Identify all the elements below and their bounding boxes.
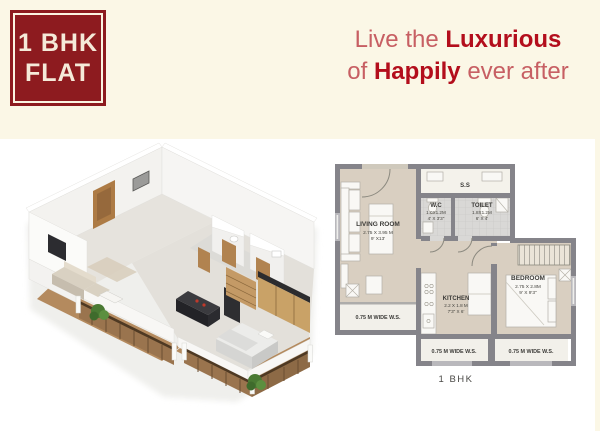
headline-line2: of Happily ever after [322, 56, 594, 88]
kitchen-label: KITCHEN [443, 296, 470, 302]
bedroom-label: BEDROOM [511, 275, 545, 282]
badge-line2: FLAT [25, 58, 91, 88]
wc-fixture [230, 236, 238, 242]
bedroom-imperial: 9' X 9'3" [519, 290, 537, 296]
living-room-metric: 2.75 X 3.95 M [363, 230, 393, 236]
toilet-metric: 1.8X1.2M [472, 210, 492, 215]
toilet-label: TOILET [471, 203, 493, 209]
floorplan-2d: S.S W.C 1.0X1.2M 4' X 3'3" TOILET 1.8X1.… [332, 158, 590, 392]
living-room-imperial: 9' X13' [371, 236, 385, 242]
kitchen-imperial: 7'3" X 6' [448, 309, 465, 314]
ws-bottom-left-label: 0.75 M WIDE W.S. [432, 349, 477, 355]
headline-line1: Live the Luxurious [322, 24, 594, 56]
living-room-label: LIVING ROOM [356, 221, 400, 228]
wc-metric: 1.0X1.2M [426, 210, 446, 215]
unit-type-badge: 1 BHK FLAT [10, 10, 106, 106]
headline: Live the Luxurious of Happily ever after [322, 24, 594, 88]
wc-imperial: 4' X 3'3" [428, 216, 445, 221]
kitchen-metric: 2.2 X 1.8 M [444, 303, 468, 308]
bedroom-metric: 2.75 X 2.8M [515, 284, 541, 290]
headline-luxurious: Luxurious [445, 26, 561, 53]
ws-left-label: 0.75 M WIDE W.S. [356, 315, 401, 321]
headline-live-the: Live the [355, 26, 446, 53]
brochure-page: 1 BHK FLAT Live the Luxurious of Happily… [0, 0, 600, 431]
wc-label: W.C [430, 203, 442, 209]
headline-ever-after: ever after [461, 58, 569, 85]
toilet-imperial: 6' X 4' [476, 216, 489, 221]
headline-of: of [347, 58, 374, 85]
toilet-fixture [272, 251, 281, 257]
wardrobe-hatch [518, 245, 570, 265]
plan-caption: 1 BHK [439, 374, 474, 385]
ws-bottom-right-label: 0.75 M WIDE W.S. [509, 349, 554, 355]
headline-happily: Happily [374, 58, 461, 85]
ss-label: S.S [460, 183, 470, 189]
badge-line1: 1 BHK [18, 28, 98, 58]
floorplan-3d-render [12, 139, 324, 407]
